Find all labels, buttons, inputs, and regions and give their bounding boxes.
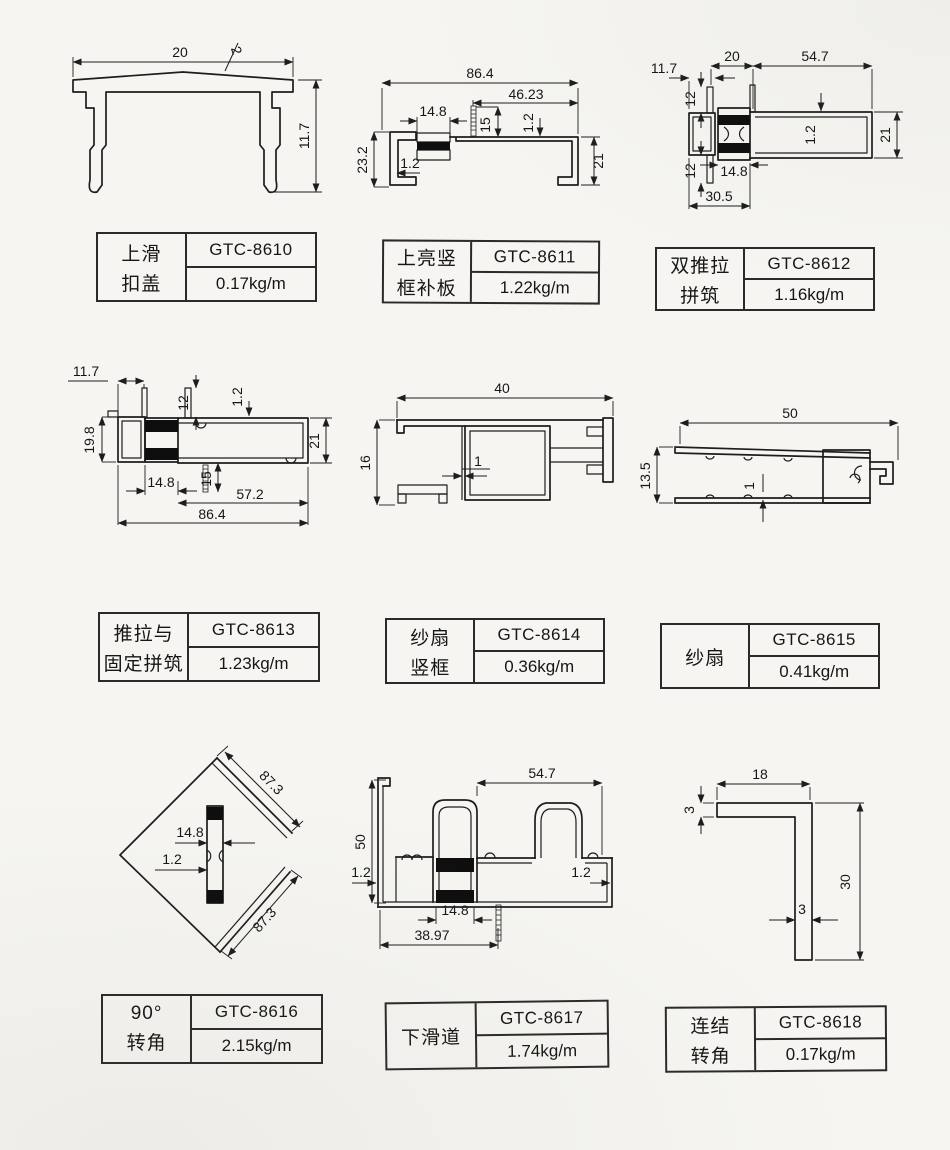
- label-table-gtc8617: 下滑道 GTC-8617 1.74kg/m: [385, 1000, 610, 1071]
- profile-weight: 2.15kg/m: [192, 1030, 321, 1062]
- profile-name: 下滑道: [387, 1003, 478, 1068]
- dim-label: 30.5: [705, 188, 732, 204]
- profile-weight: 0.36kg/m: [475, 652, 603, 682]
- profile-drawing-gtc8614: 40 16 1: [350, 370, 640, 580]
- profile-name-line1: 下滑道: [401, 1022, 461, 1050]
- profile-name-line2: 框补板: [397, 273, 457, 300]
- dim-label: 54.7: [528, 765, 555, 781]
- profile-name: 90° 转角: [103, 996, 192, 1062]
- dimension-lines: [701, 784, 864, 960]
- dim-label: 50: [352, 834, 368, 850]
- profile-name-line2: 固定拼筑: [104, 649, 184, 676]
- dim-label: 40: [494, 380, 510, 396]
- dim-label: 11.7: [73, 363, 99, 379]
- profile-name-line1: 纱扇: [410, 623, 450, 650]
- profile-outline: [689, 85, 872, 183]
- label-table-gtc8611: 上亮竖 框补板 GTC-8611 1.22kg/m: [382, 239, 600, 304]
- dim-label: 1.2: [162, 851, 182, 867]
- dim-label: 30: [837, 874, 853, 890]
- profile-weight: 1.74kg/m: [477, 1035, 607, 1068]
- profile-drawing-gtc8613: 11.7 12 1.2 19.8 21 14.8 15 57.2 86.4: [60, 355, 350, 580]
- profile-weight: 0.41kg/m: [750, 657, 878, 687]
- profile-name-line2: 转角: [127, 1028, 167, 1055]
- label-table-gtc8618: 连结 转角 GTC-8618 0.17kg/m: [665, 1005, 887, 1073]
- dim-label: 14.8: [720, 163, 747, 179]
- profile-code: GTC-8616: [192, 996, 321, 1030]
- dim-label: 38.97: [414, 927, 449, 943]
- profile-outline: [397, 418, 613, 503]
- dim-label: 86.4: [198, 506, 225, 522]
- profile-code: GTC-8612: [745, 249, 873, 280]
- profile-drawing-gtc8615: 50 13.5 1: [640, 380, 935, 585]
- profile-name: 上滑 扣盖: [98, 234, 187, 300]
- profile-drawing-gtc8617: 54.7 50 1.2 1.2 14.8 38.97: [350, 750, 642, 1005]
- profile-name: 双推拉 拼筑: [657, 249, 745, 309]
- dimension-lines: [68, 375, 332, 525]
- dim-label: 57.2: [236, 486, 263, 502]
- dim-label: 12: [682, 91, 698, 107]
- profile-weight: 1.22kg/m: [471, 273, 598, 303]
- dim-label: 3: [681, 806, 697, 814]
- dimension-lines: [657, 423, 898, 522]
- dim-label: 20: [172, 44, 188, 60]
- profile-outline: [717, 803, 812, 960]
- profile-name-line2: 转角: [691, 1041, 731, 1068]
- profile-code: GTC-8610: [187, 234, 315, 268]
- profile-outline: [108, 388, 308, 492]
- profile-code: GTC-8618: [756, 1007, 885, 1040]
- dim-label: 87.3: [249, 904, 279, 935]
- profile-code: GTC-8611: [472, 242, 599, 274]
- dim-label: 50: [782, 405, 798, 421]
- dim-label: 14.8: [147, 474, 174, 490]
- scanned-page: { "page": {"background": "#f6f5f1", "lin…: [0, 0, 950, 1150]
- profile-name-line1: 双推拉: [670, 251, 730, 278]
- profile-outline: [675, 447, 893, 503]
- profile-outline: [73, 72, 293, 192]
- dim-label: 1.2: [571, 864, 591, 880]
- dim-label: 86.4: [466, 65, 493, 81]
- profile-name-line1: 上滑: [121, 239, 161, 266]
- dim-label: 16: [357, 455, 373, 471]
- label-table-gtc8613: 推拉与 固定拼筑 GTC-8613 1.23kg/m: [98, 612, 320, 682]
- profile-drawing-gtc8618: 18 3 30 3: [650, 750, 935, 1010]
- dim-label: 11.7: [296, 123, 312, 149]
- dim-label: 1.2: [802, 125, 818, 145]
- profile-name-line2: 扣盖: [121, 269, 161, 296]
- dim-label: 23.2: [354, 146, 370, 173]
- dim-label: 3: [798, 901, 806, 917]
- thermal-break-bar: [417, 142, 450, 150]
- dim-label: 2: [228, 44, 246, 57]
- dim-label: 1.2: [520, 113, 536, 133]
- profile-name: 纱扇 竖框: [387, 620, 475, 682]
- profile-name: 上亮竖 框补板: [384, 241, 472, 301]
- dim-label: 46.23: [508, 86, 543, 102]
- dim-label: 19.8: [81, 426, 97, 453]
- dim-label: 21: [590, 153, 606, 169]
- dim-label: 11.7: [651, 60, 677, 76]
- profile-name-line1: 上亮竖: [397, 243, 457, 270]
- profile-drawing-gtc8611: 86.4 46.23 14.8 15 1.2 23.2 1.2 21: [360, 30, 650, 230]
- profile-name: 连结 转角: [667, 1008, 757, 1071]
- dim-label: 1.2: [229, 387, 245, 407]
- profile-weight: 1.23kg/m: [189, 648, 318, 680]
- dim-label: 1: [741, 482, 757, 490]
- dimension-lines: [669, 66, 903, 209]
- label-table-gtc8612: 双推拉 拼筑 GTC-8612 1.16kg/m: [655, 247, 875, 311]
- dimension-lines: [377, 398, 613, 505]
- profile-name-line1: 推拉与: [114, 619, 174, 646]
- thermal-break-bar: [207, 890, 223, 903]
- profile-drawing-gtc8616: 87.3 14.8 1.2 87.3: [80, 740, 360, 1000]
- dim-label: 1.2: [351, 864, 371, 880]
- profile-name-line2: 竖框: [410, 653, 450, 680]
- profile-weight: 0.17kg/m: [187, 268, 315, 300]
- dim-label: 18: [752, 766, 768, 782]
- dim-label: 13.5: [637, 462, 653, 489]
- thermal-break-bar: [207, 807, 223, 820]
- label-table-gtc8616: 90° 转角 GTC-8616 2.15kg/m: [101, 994, 323, 1064]
- profile-code: GTC-8617: [477, 1002, 607, 1037]
- profile-name-line1: 连结: [690, 1011, 730, 1038]
- profile-name-line2: 拼筑: [680, 281, 720, 308]
- dim-label: 14.8: [176, 824, 203, 840]
- dimension-lines: [73, 43, 322, 192]
- profile-name-line1: 90°: [131, 1003, 163, 1025]
- dim-label: 14.8: [419, 103, 446, 119]
- profile-code: GTC-8613: [189, 614, 318, 648]
- thermal-break-bar: [145, 448, 178, 460]
- dim-label: 20: [724, 48, 740, 64]
- profile-code: GTC-8615: [750, 625, 878, 657]
- thermal-break-bar: [718, 115, 750, 125]
- profile-drawing-gtc8612: 11.7 20 54.7 12 1.2 21 14.8 12 30.5: [645, 35, 935, 265]
- dim-label: 12: [175, 395, 191, 411]
- profile-weight: 0.17kg/m: [756, 1039, 885, 1070]
- dim-label: 14.8: [441, 902, 468, 918]
- thermal-break-bar: [436, 858, 474, 872]
- profile-drawing-gtc8610: 20 2 11.7: [60, 30, 340, 240]
- thermal-break-bar: [145, 420, 178, 432]
- profile-name: 推拉与 固定拼筑: [100, 614, 189, 680]
- dim-label: 21: [877, 127, 893, 143]
- profile-name-line1: 纱扇: [685, 643, 725, 670]
- profile-name: 纱扇: [662, 625, 750, 687]
- dim-label: 12: [682, 163, 698, 179]
- dim-label: 54.7: [801, 48, 828, 64]
- thermal-break-bar: [436, 890, 474, 903]
- dimension-lines: [374, 83, 600, 187]
- profile-weight: 1.16kg/m: [745, 280, 873, 309]
- thermal-break-bar: [718, 143, 750, 153]
- profile-code: GTC-8614: [475, 620, 603, 652]
- dim-label: 87.3: [256, 767, 287, 798]
- dim-label: 15: [477, 117, 493, 133]
- label-table-gtc8610: 上滑 扣盖 GTC-8610 0.17kg/m: [96, 232, 317, 302]
- label-table-gtc8614: 纱扇 竖框 GTC-8614 0.36kg/m: [385, 618, 605, 684]
- dim-label: 1: [474, 453, 482, 469]
- label-table-gtc8615: 纱扇 GTC-8615 0.41kg/m: [660, 623, 880, 689]
- profile-outline: [378, 778, 612, 941]
